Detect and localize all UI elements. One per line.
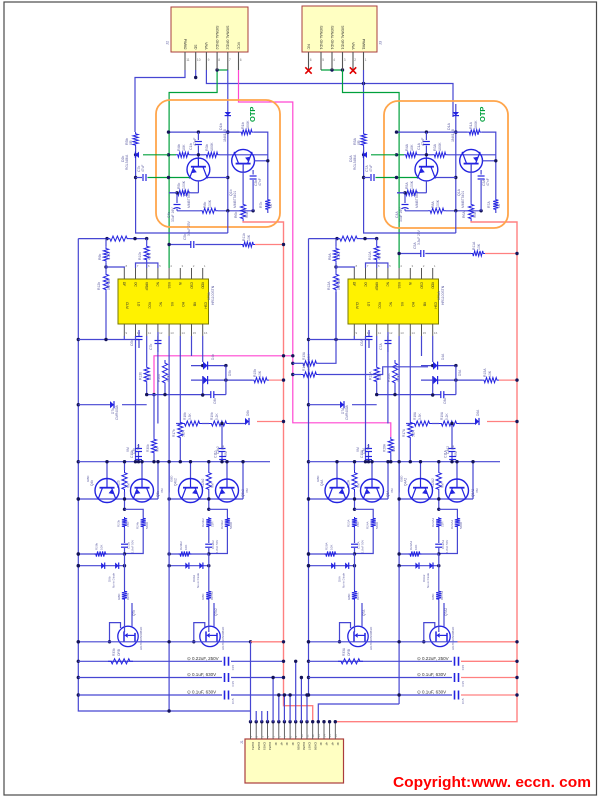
svg-text:Copyright:www. eccn. com: Copyright:www. eccn. com [393, 775, 591, 791]
